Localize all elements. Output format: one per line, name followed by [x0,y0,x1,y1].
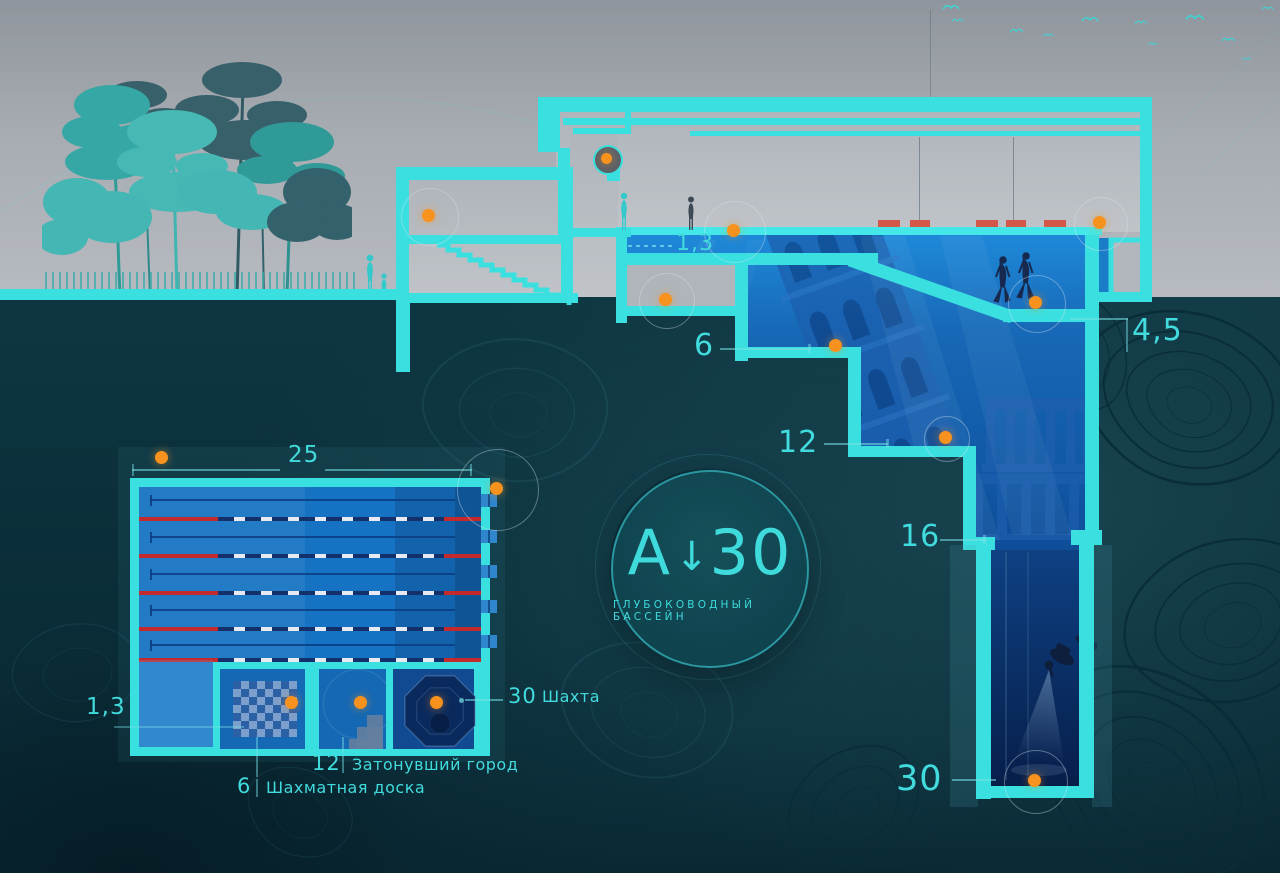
leader-line [824,443,888,445]
depth-label-shallow: 1,3 [676,233,714,255]
leader-line [1126,318,1128,352]
starting-block[interactable] [481,530,497,543]
plan-city-label: Затонувший город [352,757,518,773]
starting-block[interactable] [481,635,497,648]
hotspot-shaft-plan[interactable] [430,696,443,709]
shaft-octagon [400,671,480,751]
leader-line [114,726,244,728]
lane-tick [150,605,152,616]
annex-roof [396,167,568,180]
lane-line [150,573,455,575]
hotspot-shallow[interactable] [727,224,740,237]
depth-label-16: 16 [900,522,940,552]
roof-mast [930,10,931,98]
hall-roof [538,97,1152,112]
leader-line [720,348,810,350]
dimension-line [325,469,472,471]
logo-wordmark: А ↓ 30 [628,516,793,589]
logo-badge: А ↓ 30 ГЛУБОКОВОДНЫЙ БАССЕЙН [611,470,809,668]
hotspot-divers[interactable] [1029,296,1042,309]
hotspot-right-deck[interactable] [1093,216,1106,229]
leader-tick [983,535,986,544]
plan-shaft-depth: 30 [508,686,537,707]
logo-letter: А [628,516,672,589]
logo-arrow-down-icon: ↓ [675,534,709,580]
plan-chess-depth: 6 [237,776,251,797]
lane-rope [139,627,481,631]
leader-line [1070,318,1128,320]
plan-length-label: 25 [288,444,319,467]
leader-tick [808,344,811,353]
leader-line [952,779,996,781]
depth-label-30: 30 [896,762,943,797]
hotspot-entrance[interactable] [601,153,612,164]
logo-number: 30 [710,516,793,589]
starting-block[interactable] [481,565,497,578]
hotspot-plan-deck[interactable] [155,451,168,464]
starting-block[interactable] [481,600,497,613]
lane-rope [139,517,481,521]
leader-tick [886,439,889,448]
depth-label-platform: 4,5 [1132,316,1183,346]
city-steps-mark [349,739,383,749]
chessboard-pattern [233,681,297,737]
leader-line [940,539,986,541]
lane-line [150,644,455,646]
birds-icon [890,2,1280,72]
hotspot-chessboard[interactable] [285,696,298,709]
hall-roof-beam2 [690,131,1148,136]
leader-dashes [628,245,674,247]
plan-city-depth: 12 [312,753,341,774]
dimension-line [132,469,280,471]
plan-shallow-label: 1,3 [86,696,126,719]
door-jamb [625,112,631,134]
lane-line [150,499,455,501]
depth-label-6: 6 [694,331,714,361]
infographic-poster: 1,3 4,5 6 12 16 30 А ↓ 30 ГЛУБОКОВОДНЫЙ … [0,0,1280,873]
lane-line [150,536,455,538]
hall-left-wall-upper [538,97,560,152]
hotspot-plan-corner[interactable] [490,482,503,495]
staircase [435,241,575,307]
leader-line [256,737,258,777]
lane-tick [150,532,152,543]
hall-interior [556,112,1140,232]
leader-line [342,737,344,753]
plan-chess-label: Шахматная доска [266,780,425,796]
plan-shallow-section [139,660,213,747]
hotspot-sunken-city[interactable] [354,696,367,709]
lane-line [150,609,455,611]
deck-markers [878,220,1066,227]
leader-line [465,699,503,701]
lane-rope [139,554,481,558]
lane-tick [150,640,152,651]
plan-shaft-label: Шахта [542,689,600,705]
hotspot-terrace-6[interactable] [829,339,842,352]
hall-right-wall [1140,97,1152,302]
leader-dot [459,698,464,703]
hotspot-underpool-room[interactable] [659,293,672,306]
ground-line [0,289,398,300]
label-divider [342,755,344,773]
dimension-tick [132,464,134,476]
plan-shaft-section [386,662,481,756]
lane-rope [139,591,481,595]
swimmer-standing-icon [684,196,698,232]
label-divider [256,779,258,797]
vestibule-beam [573,128,631,134]
hotspot-annex[interactable] [422,209,435,222]
hall-footing [1097,292,1152,302]
hall-roof-beam [563,118,1148,125]
annex-pier [396,297,410,372]
hotspot-shaft-bottom[interactable] [1028,774,1041,787]
plan-chessboard-section [213,662,312,756]
visitor-icon [616,192,632,232]
lane-tick [150,569,152,580]
lane-tick [150,495,152,506]
hotspot-terrace-12[interactable] [939,431,952,444]
trees-silhouette [42,50,352,300]
logo-subtitle: ГЛУБОКОВОДНЫЙ БАССЕЙН [613,599,807,623]
